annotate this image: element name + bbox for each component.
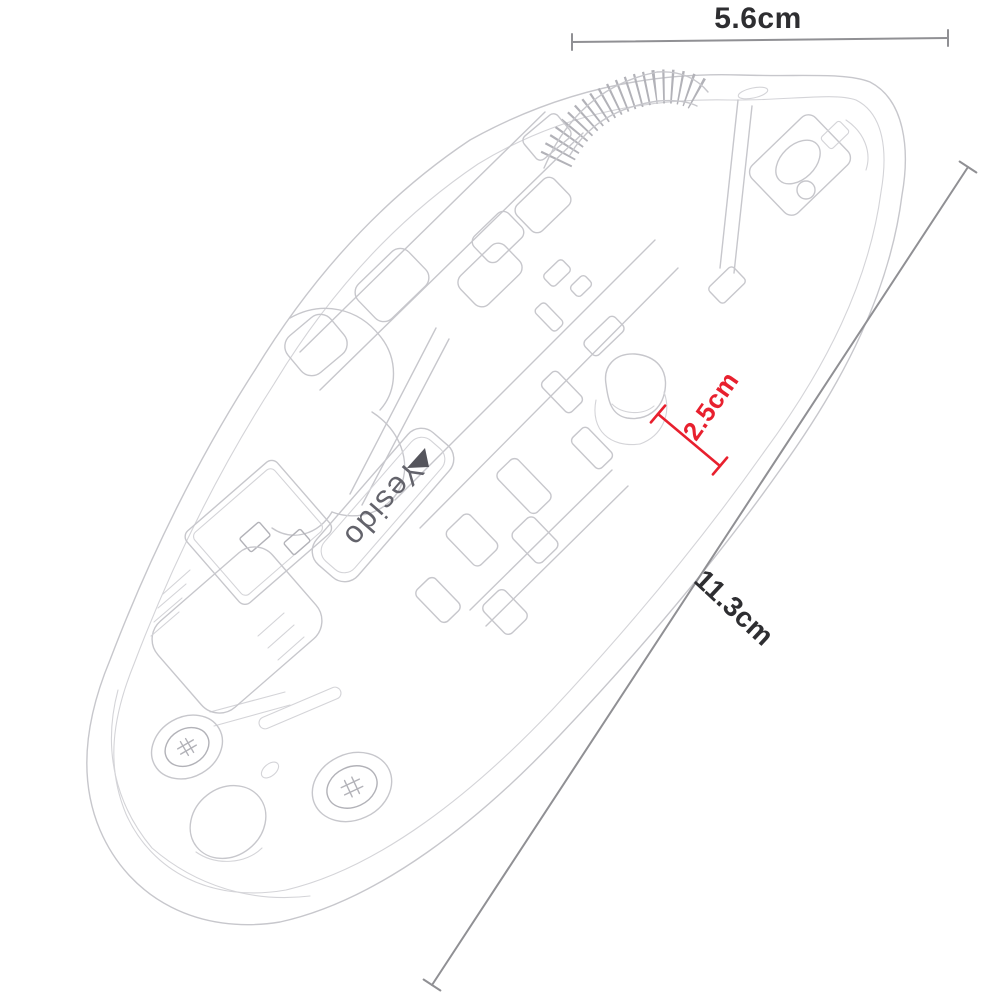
screw-outer	[301, 740, 403, 834]
front-clip	[820, 120, 850, 150]
button-pad	[350, 243, 434, 326]
screw-head	[320, 758, 384, 816]
outer-shell-outline	[87, 75, 905, 925]
dimension-label-top-width: 5.6cm	[714, 2, 802, 36]
usb-metal-shell	[182, 457, 335, 607]
screw-outer	[140, 703, 234, 792]
tail-rim-arc	[111, 690, 310, 898]
usb-cap-body	[142, 537, 332, 723]
usb-receiver	[142, 457, 335, 723]
button-components	[272, 85, 868, 535]
mouse-outline	[87, 75, 905, 925]
keycap	[454, 239, 526, 311]
cover-blob-edge	[290, 308, 394, 410]
dimension-tick	[651, 406, 665, 423]
battery-cover-slots	[257, 258, 626, 731]
vent-leaf	[737, 85, 768, 101]
scroll-wheel-ribs	[556, 86, 702, 160]
scroll-wheel-outer-edge	[544, 72, 708, 168]
switch-housing	[279, 309, 353, 382]
top-shell-seams	[210, 100, 752, 726]
screw-head	[158, 720, 216, 774]
sensor-button	[595, 354, 667, 445]
screws	[140, 703, 403, 874]
small-oval-hole	[258, 759, 281, 781]
rubber-foot	[176, 771, 281, 874]
dimension-diagram: 5.6cm 11.3cm 2.5cm Yesido	[0, 0, 1000, 1000]
bottom-bar-slot	[257, 685, 343, 730]
dimension-line	[572, 38, 948, 42]
dimension-tick	[713, 458, 727, 475]
screw-cross-icon	[175, 736, 199, 759]
front-switch-block	[745, 111, 854, 220]
usb-contact-slot	[239, 522, 270, 553]
front-post	[797, 181, 815, 199]
dimension-tick	[960, 162, 977, 173]
screw-cross-icon	[339, 775, 365, 800]
dimension-tick	[424, 980, 441, 991]
pcb-block	[707, 265, 747, 304]
usb-metal-inner	[191, 466, 325, 597]
mouse-technical-drawing	[0, 0, 1000, 1000]
scroll-wheel	[521, 72, 708, 168]
